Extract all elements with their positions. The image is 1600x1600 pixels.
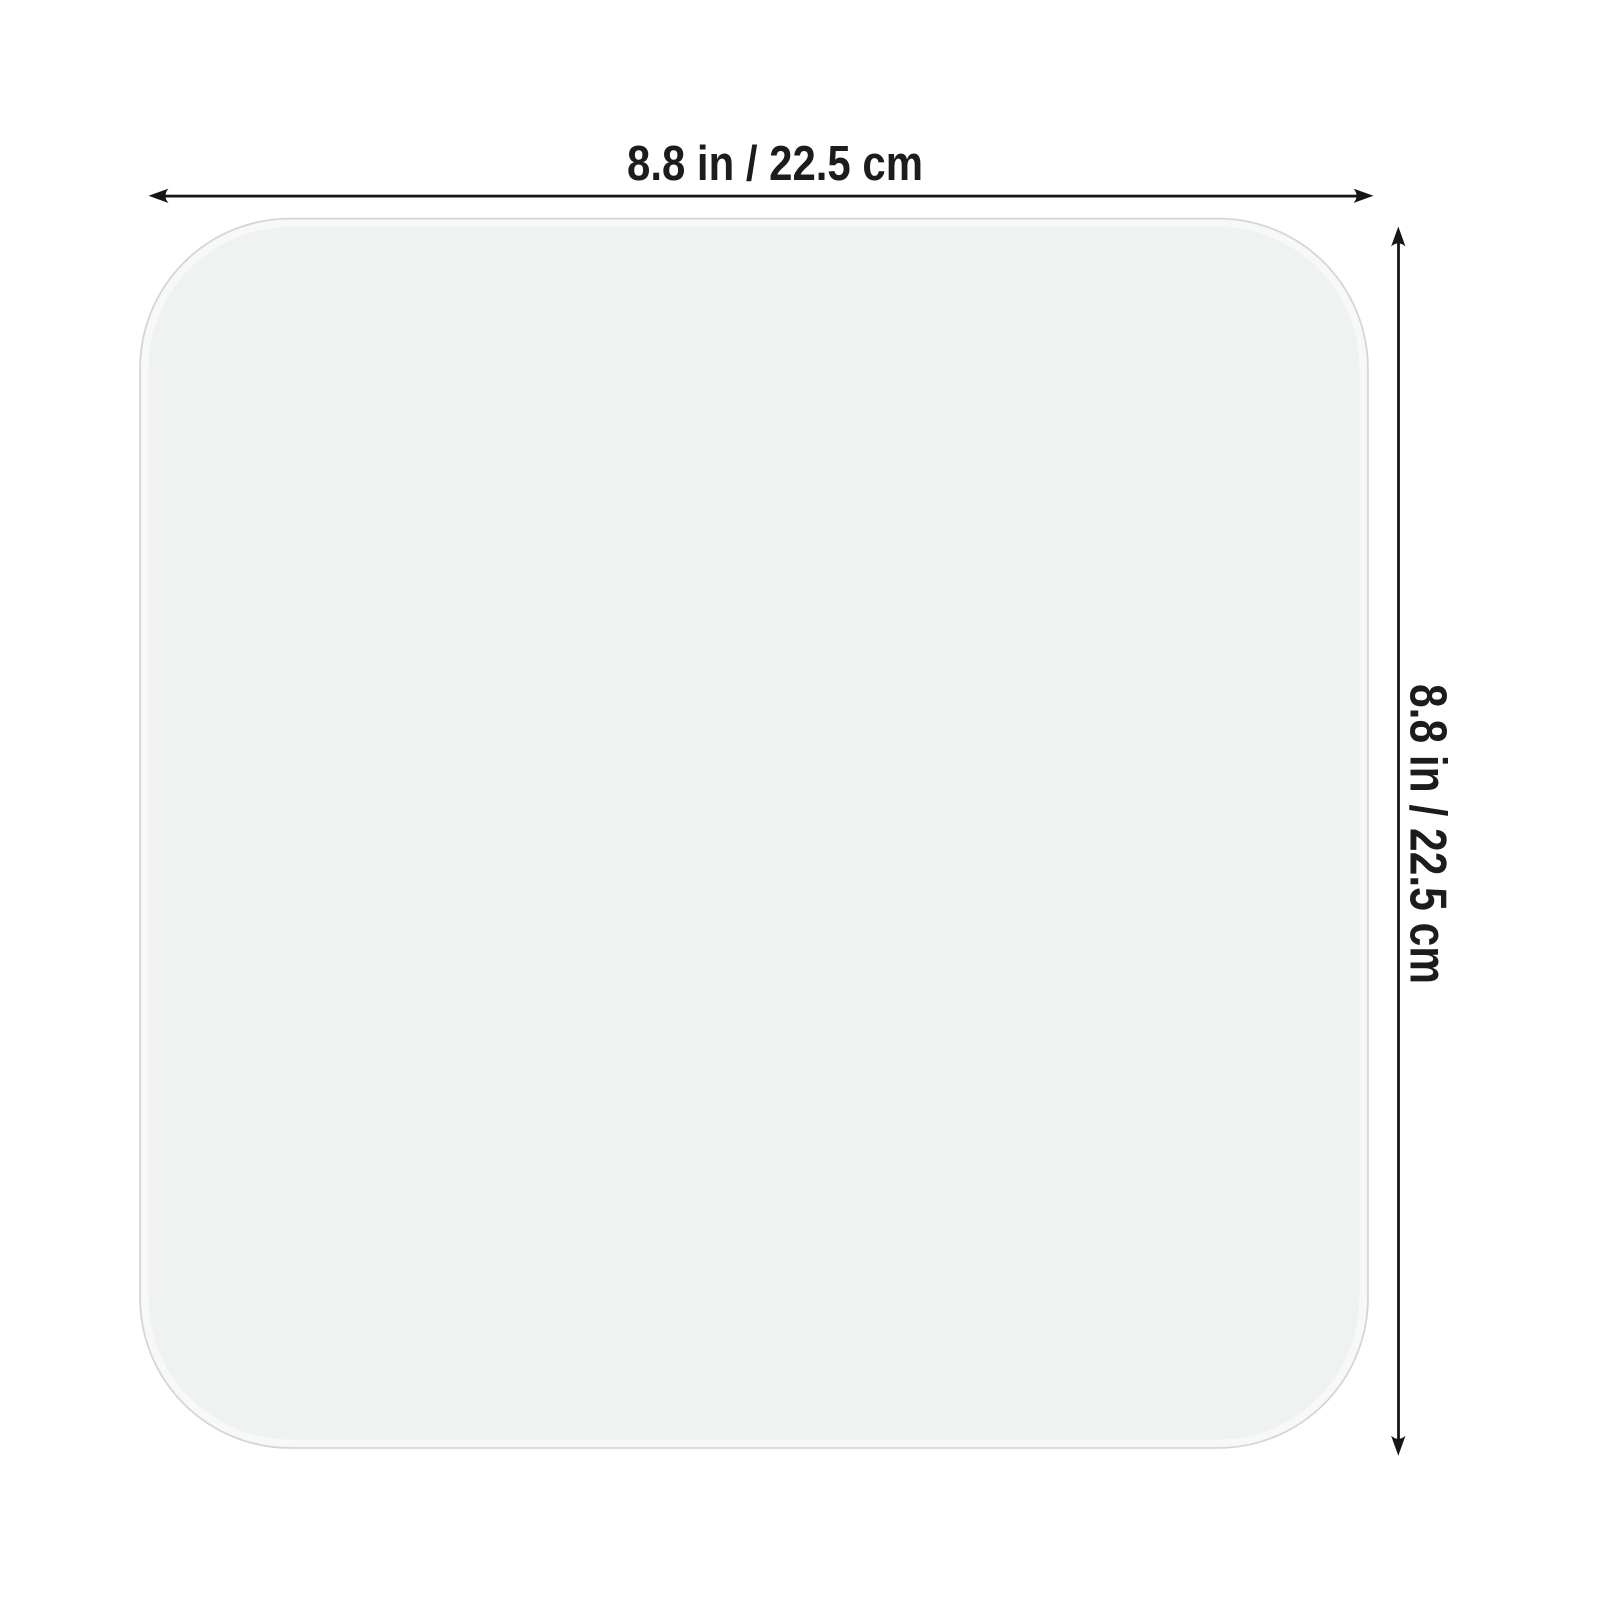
svg-text:8.8 in / 22.5 cm: 8.8 in / 22.5 cm: [1400, 684, 1458, 984]
svg-text:8.8 in / 22.5 cm: 8.8 in / 22.5 cm: [627, 137, 923, 191]
